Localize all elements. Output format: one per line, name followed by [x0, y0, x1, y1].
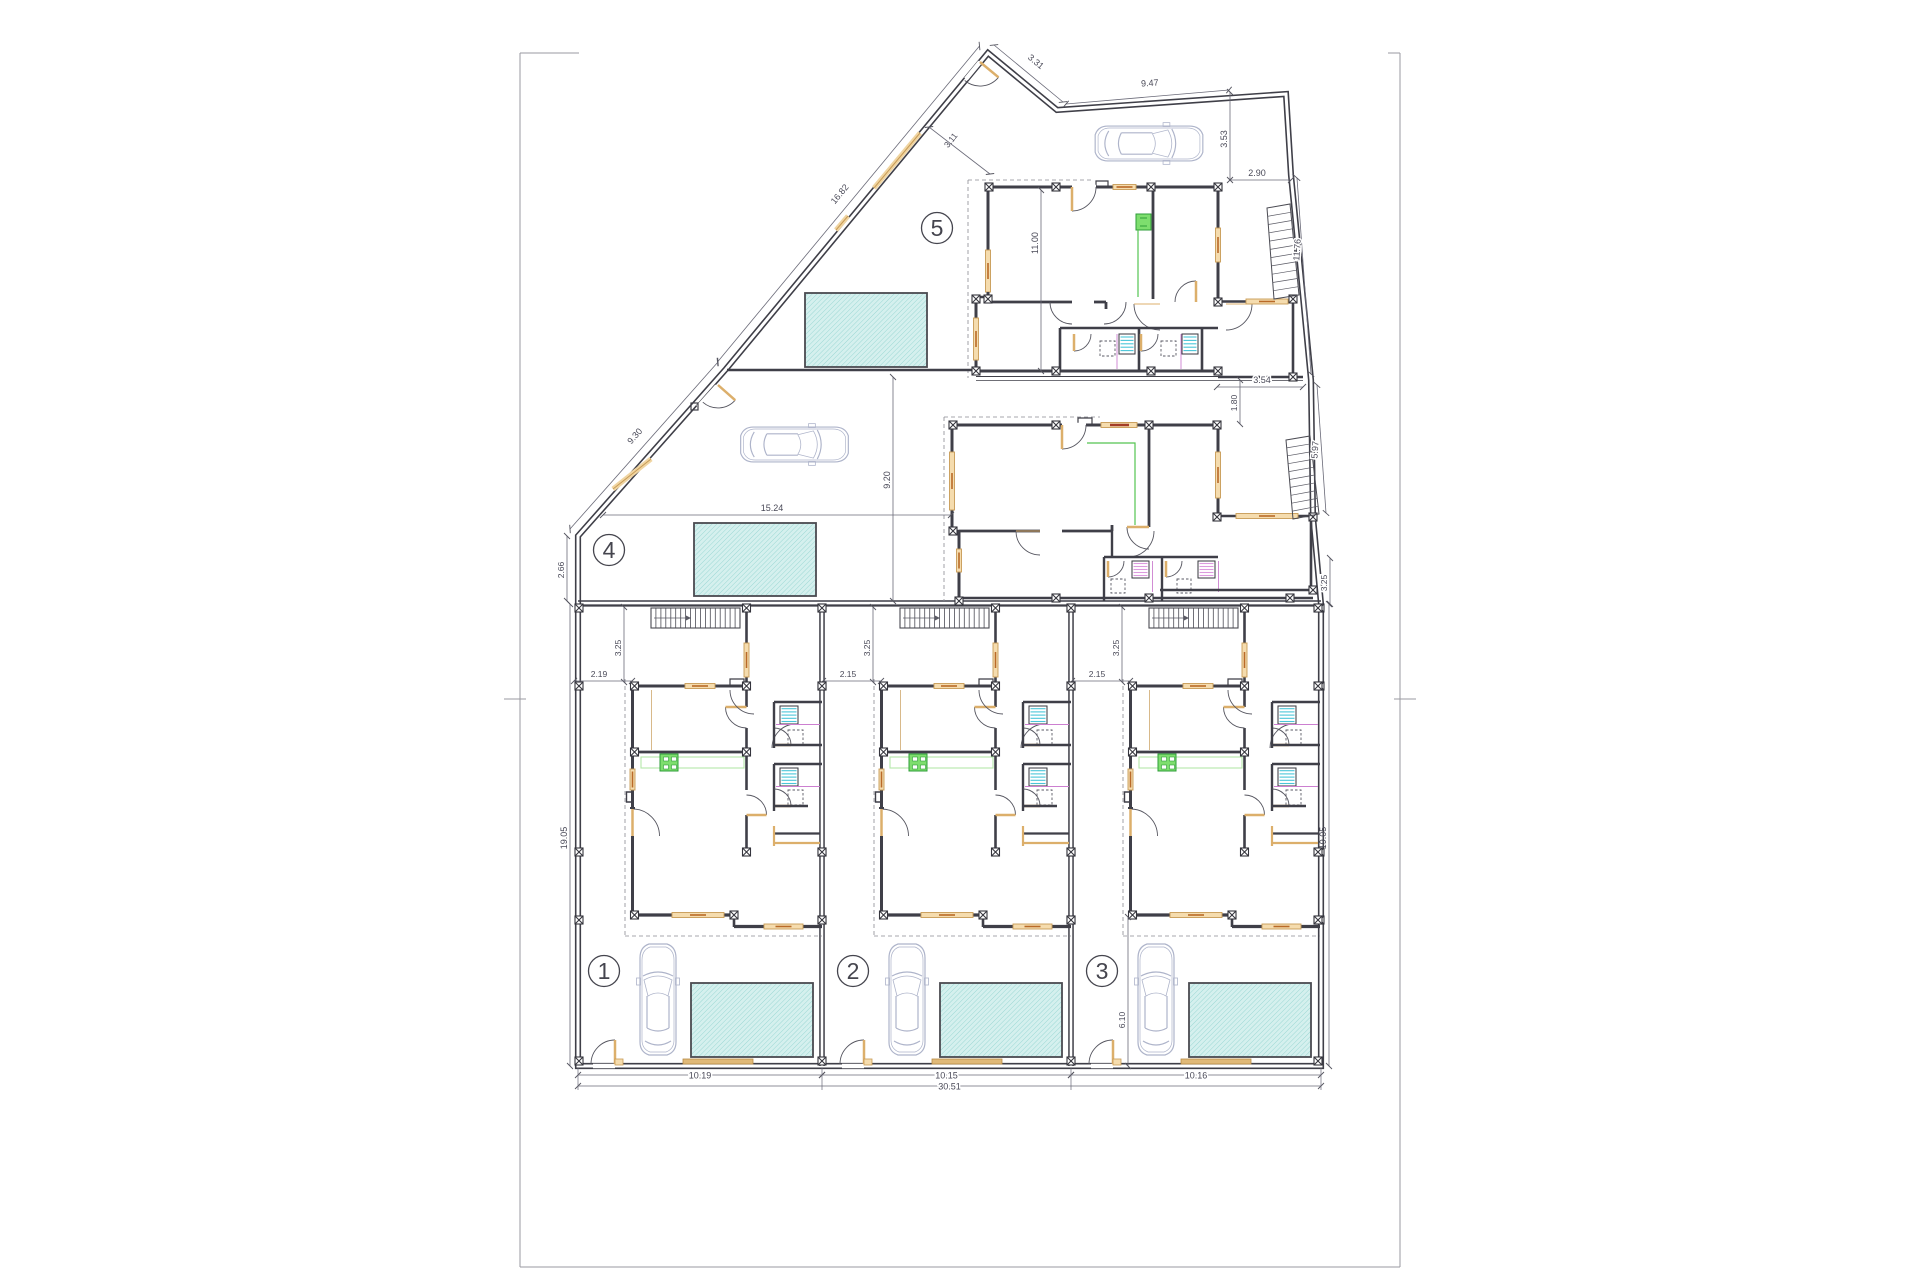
- svg-text:3.25: 3.25: [1319, 574, 1329, 591]
- svg-text:3.25: 3.25: [1111, 639, 1121, 656]
- svg-text:19.05: 19.05: [1318, 827, 1328, 850]
- svg-text:1.80: 1.80: [1229, 394, 1239, 411]
- svg-text:3.54: 3.54: [1253, 375, 1271, 385]
- svg-text:3: 3: [1096, 958, 1109, 984]
- svg-text:9.47: 9.47: [1141, 77, 1159, 88]
- svg-text:2: 2: [847, 958, 860, 984]
- svg-text:10.19: 10.19: [689, 1071, 712, 1081]
- svg-text:11.76: 11.76: [1291, 239, 1303, 262]
- svg-text:30.51: 30.51: [938, 1082, 961, 1092]
- svg-text:5: 5: [931, 215, 944, 241]
- svg-text:5.97: 5.97: [1309, 441, 1320, 459]
- svg-text:3.25: 3.25: [862, 639, 872, 656]
- svg-text:2.15: 2.15: [840, 669, 857, 679]
- svg-text:1: 1: [598, 958, 611, 984]
- svg-text:9.20: 9.20: [882, 471, 892, 489]
- svg-text:15.24: 15.24: [761, 503, 784, 513]
- svg-text:10.15: 10.15: [935, 1071, 958, 1081]
- svg-text:11.00: 11.00: [1030, 232, 1040, 254]
- svg-text:19.05: 19.05: [559, 827, 569, 850]
- svg-text:2.66: 2.66: [556, 561, 566, 578]
- svg-text:10.16: 10.16: [1185, 1071, 1208, 1081]
- svg-text:2.15: 2.15: [1089, 669, 1106, 679]
- svg-text:4: 4: [603, 537, 616, 563]
- svg-text:2.19: 2.19: [591, 669, 608, 679]
- svg-text:3.53: 3.53: [1219, 130, 1229, 148]
- svg-text:6.10: 6.10: [1117, 1011, 1127, 1028]
- svg-text:2.90: 2.90: [1248, 168, 1266, 178]
- svg-text:3.25: 3.25: [613, 639, 623, 656]
